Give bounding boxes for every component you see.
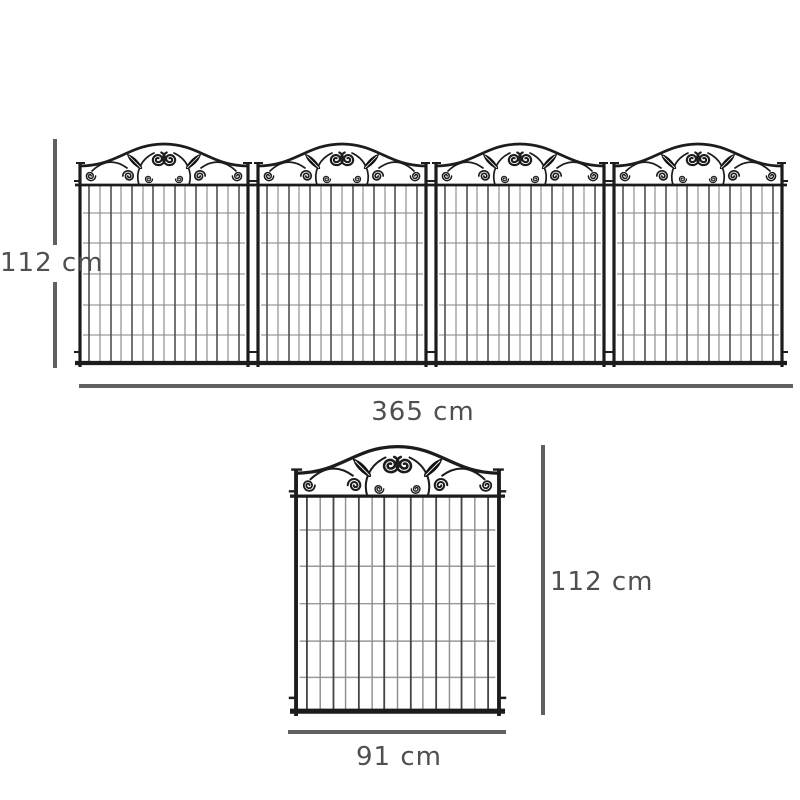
top-assembly-width-label: 365 cm [343, 396, 503, 428]
single-panel-height-label: 112 cm [550, 566, 670, 598]
fence-panel-4 [608, 144, 788, 367]
product-diagram: 112 cm 365 cm 112 cm 91 cm [0, 0, 800, 800]
fence-panel-3 [430, 144, 610, 367]
single-fence-panel [289, 447, 506, 716]
fence-panel-2 [252, 144, 432, 367]
top-assembly-height-label: 112 cm [0, 247, 82, 279]
fence-assembly-4-panels [74, 144, 788, 367]
fence-panel-single [289, 447, 506, 716]
dimension-lines [55, 139, 793, 732]
single-panel-width-label: 91 cm [319, 741, 479, 773]
